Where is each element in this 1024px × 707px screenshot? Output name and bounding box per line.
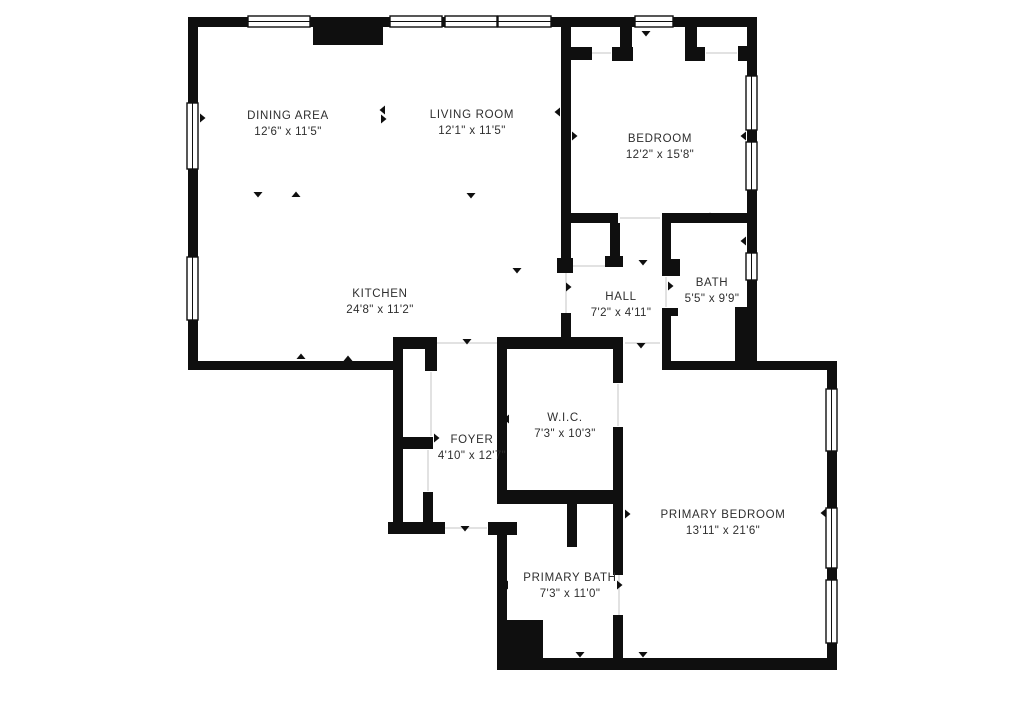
fixture-block (498, 620, 543, 660)
wall-segment (613, 615, 623, 658)
wall-segment (610, 223, 620, 257)
opening-tick (576, 652, 585, 658)
wall-segment (393, 337, 403, 533)
opening-tick (821, 509, 827, 518)
wall-segment (567, 504, 577, 547)
wall-segment (423, 492, 433, 523)
opening-tick (292, 192, 301, 198)
wall-segment (497, 658, 833, 670)
wall-segment (425, 349, 437, 371)
wall-segment (388, 522, 445, 534)
wall-segment (662, 214, 671, 262)
wall-segment (662, 259, 680, 276)
opening-tick (555, 108, 561, 117)
wall-segment (557, 258, 573, 273)
wall-segment (685, 47, 705, 61)
chase-block (735, 307, 757, 368)
opening-tick (572, 132, 578, 141)
wall-segment (613, 504, 623, 575)
opening-tick (566, 283, 572, 292)
wall-segment (396, 437, 433, 449)
opening-tick (434, 434, 440, 443)
opening-tick (637, 343, 646, 349)
wall-segment (561, 213, 618, 223)
opening-tick (668, 282, 674, 291)
opening-tick (642, 31, 651, 37)
opening-tick (639, 260, 648, 266)
floor-plan-canvas: DINING AREA 12'6" x 11'5" LIVING ROOM 12… (0, 0, 1024, 707)
fireplace-block (313, 18, 383, 45)
opening-tick (297, 354, 306, 360)
wall-segment (497, 337, 623, 349)
floor-plan-drawing (0, 0, 1024, 707)
wall-segment (507, 490, 623, 504)
wall-segment (571, 47, 592, 60)
opening-tick (625, 510, 631, 519)
opening-tick (380, 106, 386, 115)
opening-tick (344, 356, 353, 362)
opening-tick (741, 237, 747, 246)
opening-tick (639, 652, 648, 658)
wall-segment (612, 47, 633, 61)
opening-tick (513, 268, 522, 274)
wall-segment (605, 256, 623, 267)
wall-segment (662, 308, 671, 370)
opening-tick (467, 193, 476, 199)
opening-tick (741, 132, 747, 141)
wall-segment (561, 17, 571, 273)
opening-tick (200, 114, 206, 123)
opening-tick (254, 192, 263, 198)
wall-segment (188, 361, 400, 370)
wall-segment (662, 308, 678, 316)
wall-segment (662, 361, 833, 370)
wall-segment (613, 337, 623, 383)
opening-tick (381, 115, 387, 124)
wall-segment (738, 46, 752, 61)
